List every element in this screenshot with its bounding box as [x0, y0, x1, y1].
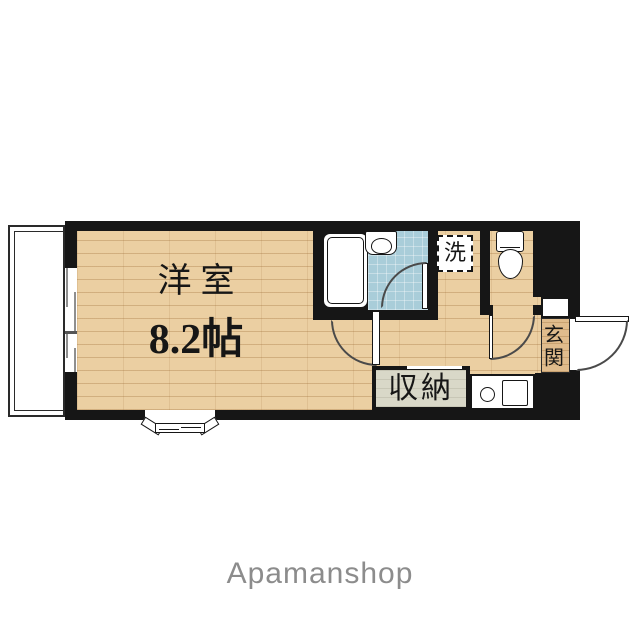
entrance-label: 玄関: [545, 322, 567, 372]
storage-box: 収納: [372, 366, 470, 411]
storage-floor: 収納: [376, 370, 466, 407]
main-room-name-label: 洋室: [77, 262, 315, 302]
bathroom-sink-bowl: [371, 238, 392, 254]
laundry-label: 洗: [439, 237, 471, 269]
bathtub: [323, 233, 368, 308]
storage-label: 収納: [376, 370, 466, 407]
entrance-door-arc: [576, 320, 628, 371]
brand-text: Apamanshop: [0, 556, 640, 592]
shoe-cabinet: [541, 297, 570, 318]
balcony-inner-line: [14, 231, 63, 411]
main-room-door-leaf: [372, 311, 380, 365]
utility-shaft: [533, 221, 580, 297]
kitchen-sink: [502, 380, 528, 406]
window-upper: [65, 268, 77, 331]
kitchen-burner: [480, 387, 495, 402]
bay-window-gap: [145, 410, 215, 420]
bay-window-center-pane: [155, 423, 205, 433]
laundry-box: 洗: [437, 235, 473, 272]
window-lower: [65, 334, 77, 372]
balcony: [8, 225, 65, 417]
main-room-size-label: 8.2帖: [77, 316, 315, 364]
bathroom-sink: [365, 231, 397, 255]
floorplan-canvas: 洗 玄関 収納 洋室 8.2帖 Apamanshop: [0, 0, 640, 640]
bathtub-inner: [327, 237, 364, 304]
entrance-floor: 玄関: [541, 318, 570, 373]
kitchen-counter: [470, 374, 535, 410]
storage-door-gap-line: [407, 366, 462, 369]
toilet-wall-left: [480, 230, 490, 315]
toilet-wall-bottom-left: [480, 305, 493, 315]
corner-wall-block: [535, 373, 580, 420]
